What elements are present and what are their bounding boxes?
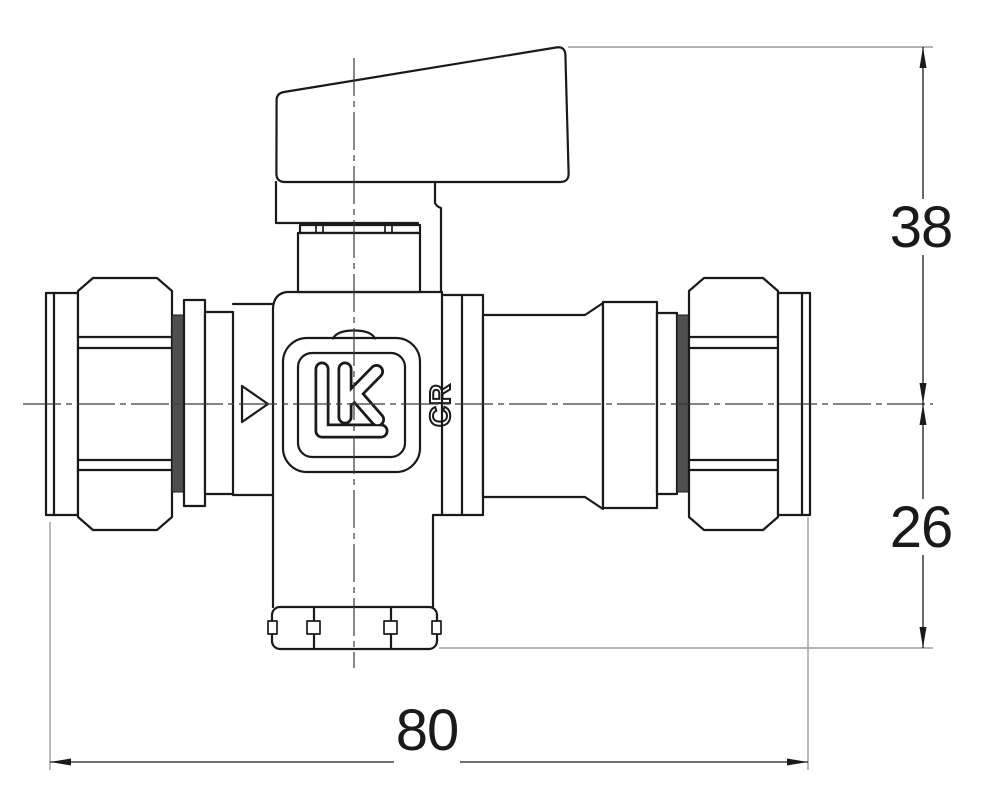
arrowhead-down-icon <box>920 627 927 648</box>
arrowhead-down-icon <box>920 383 927 404</box>
bottom-hex-notch <box>384 621 397 634</box>
bottom-hex-notch <box>432 621 441 634</box>
bottom-hex-notch <box>307 621 320 634</box>
arrowhead-up-icon <box>920 47 927 68</box>
arrowhead-right-icon <box>787 759 808 766</box>
handle-assembly <box>276 47 569 292</box>
valve-body <box>233 292 462 607</box>
dimension-value-26: 26 <box>890 495 953 560</box>
lk-logo: LK <box>283 331 420 473</box>
ball-valve-drawing: LK CR 38 26 <box>0 0 1000 792</box>
arrowhead-up-icon <box>920 404 927 425</box>
left-port-lines <box>233 304 273 495</box>
bottom-hex-notch <box>268 621 277 634</box>
right-flange-ring <box>462 295 483 515</box>
stem-flange <box>300 225 420 233</box>
right-collar <box>603 302 657 508</box>
left-collar-ring <box>205 312 233 494</box>
dimension-value-38: 38 <box>890 195 953 260</box>
right-tailpiece <box>483 303 603 509</box>
bonnet <box>298 233 420 292</box>
arrowhead-left-icon <box>50 759 71 766</box>
dimension-value-80: 80 <box>396 698 459 763</box>
handle-lever <box>276 47 568 182</box>
cr-marking: CR <box>425 383 457 427</box>
left-collar <box>184 300 205 506</box>
technical-drawing-canvas: LK CR 38 26 <box>0 0 1000 792</box>
